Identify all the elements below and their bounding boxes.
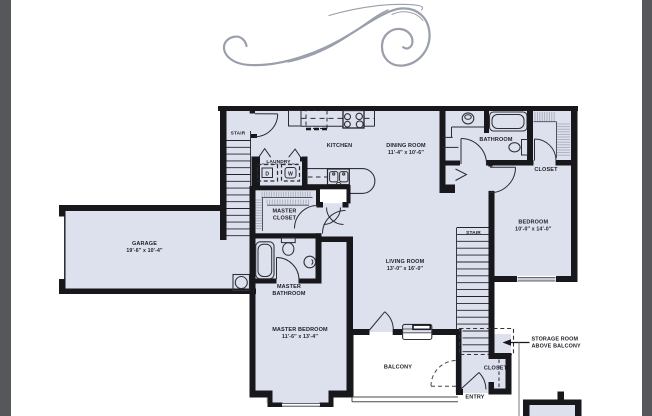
svg-text:MASTER BEDROOM: MASTER BEDROOM xyxy=(272,327,328,333)
svg-text:19′-6″ x 10′-4″: 19′-6″ x 10′-4″ xyxy=(126,248,163,254)
svg-text:BATHROOM: BATHROOM xyxy=(479,137,512,143)
svg-text:13′-0″ x 16′-0″: 13′-0″ x 16′-0″ xyxy=(387,266,424,272)
svg-text:11′-6″ x 13′-4″: 11′-6″ x 13′-4″ xyxy=(282,334,318,340)
svg-text:DINING ROOM: DINING ROOM xyxy=(386,143,426,149)
svg-text:CLOSET: CLOSET xyxy=(534,167,558,173)
svg-text:GARAGE: GARAGE xyxy=(132,241,157,247)
svg-text:ENTRY: ENTRY xyxy=(465,394,484,400)
svg-text:BEDROOM: BEDROOM xyxy=(518,220,548,226)
svg-text:W: W xyxy=(288,172,293,178)
svg-text:ABOVE BALCONY: ABOVE BALCONY xyxy=(532,344,582,350)
svg-text:STAIR: STAIR xyxy=(466,230,481,236)
svg-text:BALCONY: BALCONY xyxy=(384,364,412,370)
svg-text:KITCHEN: KITCHEN xyxy=(327,143,353,149)
svg-text:CLOSET: CLOSET xyxy=(484,365,508,371)
svg-text:MASTER: MASTER xyxy=(272,209,296,215)
svg-text:D: D xyxy=(265,172,269,178)
svg-text:CLOSET: CLOSET xyxy=(273,215,297,221)
svg-text:STAIR: STAIR xyxy=(231,130,246,136)
svg-text:LIVING ROOM: LIVING ROOM xyxy=(386,259,425,265)
svg-text:10′-0″ x 14′-0″: 10′-0″ x 14′-0″ xyxy=(515,227,552,233)
svg-text:STORAGE ROOM: STORAGE ROOM xyxy=(532,337,579,343)
svg-text:11′-4″ x 10′-6″: 11′-4″ x 10′-6″ xyxy=(388,150,424,156)
svg-text:BATHROOM: BATHROOM xyxy=(272,291,305,297)
svg-text:MASTER: MASTER xyxy=(277,284,301,290)
svg-text:LAUNDRY: LAUNDRY xyxy=(266,159,291,165)
